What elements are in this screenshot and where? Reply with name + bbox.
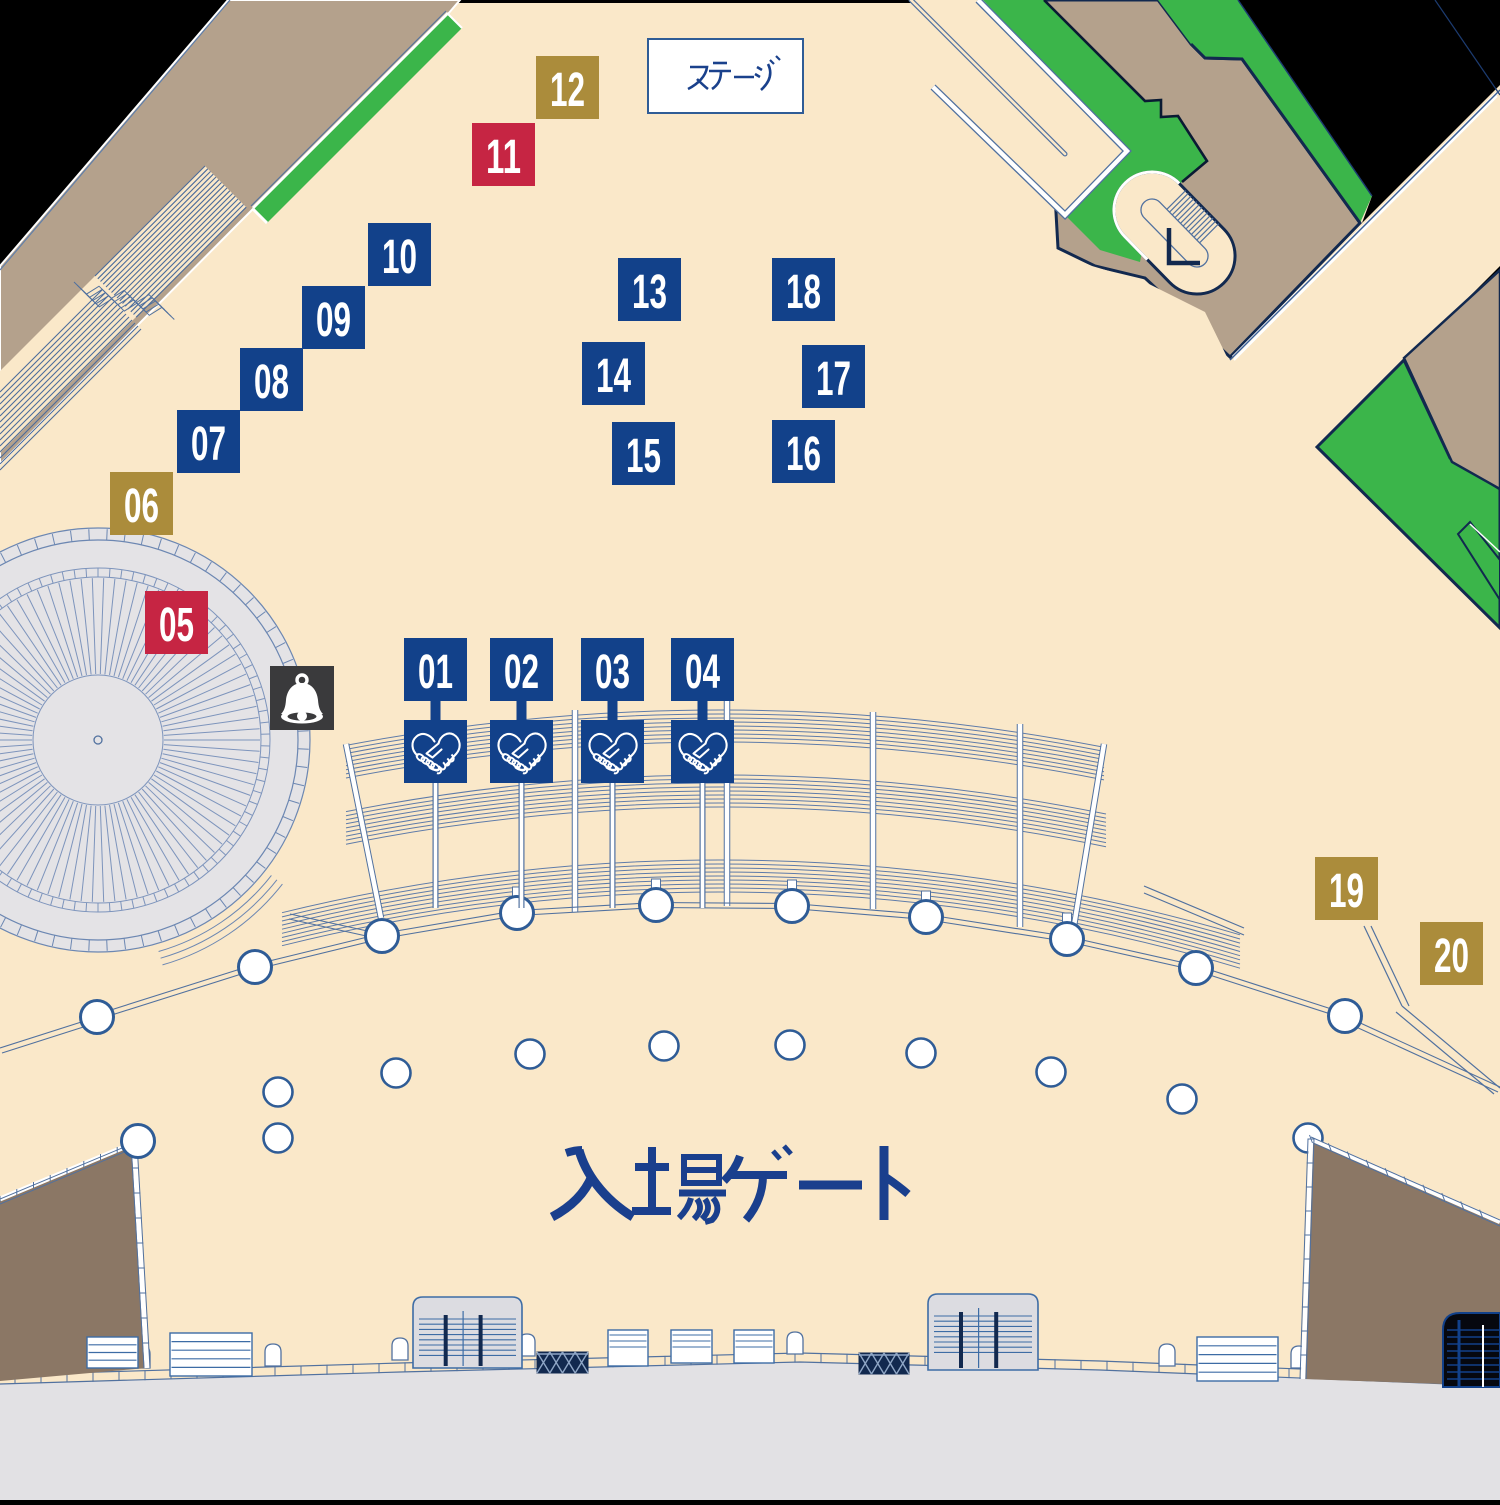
- svg-text:09: 09: [316, 294, 351, 347]
- svg-text:06: 06: [124, 480, 159, 533]
- svg-text:20: 20: [1434, 930, 1469, 983]
- svg-text:05: 05: [159, 599, 194, 652]
- svg-text:14: 14: [596, 350, 631, 403]
- svg-text:10: 10: [382, 231, 417, 284]
- svg-text:19: 19: [1329, 865, 1364, 918]
- svg-text:17: 17: [816, 353, 851, 406]
- svg-text:13: 13: [632, 266, 667, 319]
- svg-text:12: 12: [550, 64, 585, 117]
- svg-text:08: 08: [254, 356, 289, 409]
- svg-text:07: 07: [191, 418, 226, 471]
- svg-text:01: 01: [418, 646, 453, 699]
- svg-text:11: 11: [486, 131, 521, 184]
- svg-text:02: 02: [504, 646, 539, 699]
- svg-text:04: 04: [685, 646, 720, 699]
- svg-text:16: 16: [786, 428, 821, 481]
- svg-text:03: 03: [595, 646, 630, 699]
- svg-text:15: 15: [626, 430, 661, 483]
- svg-text:18: 18: [786, 266, 821, 319]
